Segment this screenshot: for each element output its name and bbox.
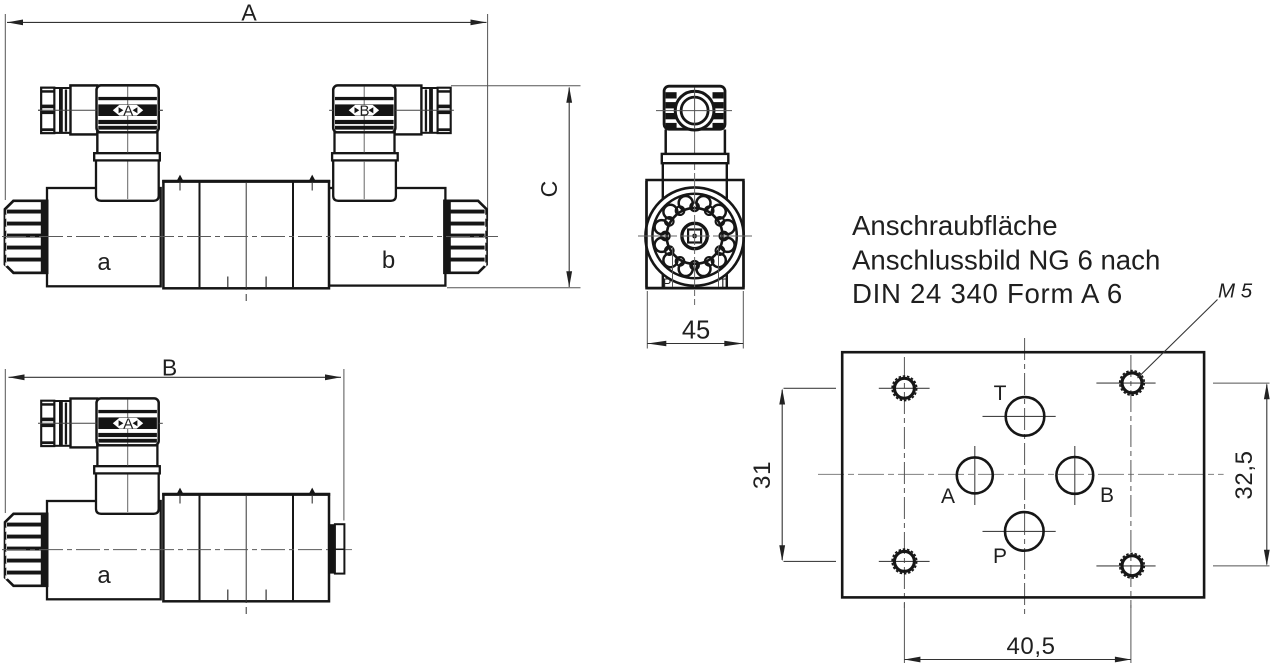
svg-text:A: A <box>123 103 133 120</box>
svg-text:A: A <box>123 416 133 433</box>
svg-text:B: B <box>162 354 177 380</box>
svg-text:A: A <box>241 0 257 26</box>
svg-text:Anschraubfläche: Anschraubfläche <box>852 210 1058 241</box>
svg-text:P: P <box>993 545 1007 568</box>
svg-text:B: B <box>1100 484 1114 507</box>
svg-text:40,5: 40,5 <box>1006 633 1055 660</box>
svg-text:C: C <box>536 181 562 198</box>
svg-text:A: A <box>941 485 955 508</box>
svg-text:Anschlussbild NG 6 nach: Anschlussbild NG 6 nach <box>852 245 1160 276</box>
svg-text:M 5: M 5 <box>1218 280 1253 303</box>
svg-text:B: B <box>359 103 369 120</box>
svg-text:b: b <box>382 247 395 274</box>
svg-text:45: 45 <box>682 317 710 345</box>
svg-text:DIN 24 340 Form A 6: DIN 24 340 Form A 6 <box>852 278 1123 309</box>
svg-text:31: 31 <box>749 461 776 489</box>
svg-text:a: a <box>97 249 111 276</box>
svg-text:T: T <box>719 277 727 291</box>
svg-text:a: a <box>97 562 111 589</box>
svg-text:32,5: 32,5 <box>1231 450 1258 499</box>
svg-text:T: T <box>994 382 1007 405</box>
svg-text:P: P <box>663 277 671 291</box>
